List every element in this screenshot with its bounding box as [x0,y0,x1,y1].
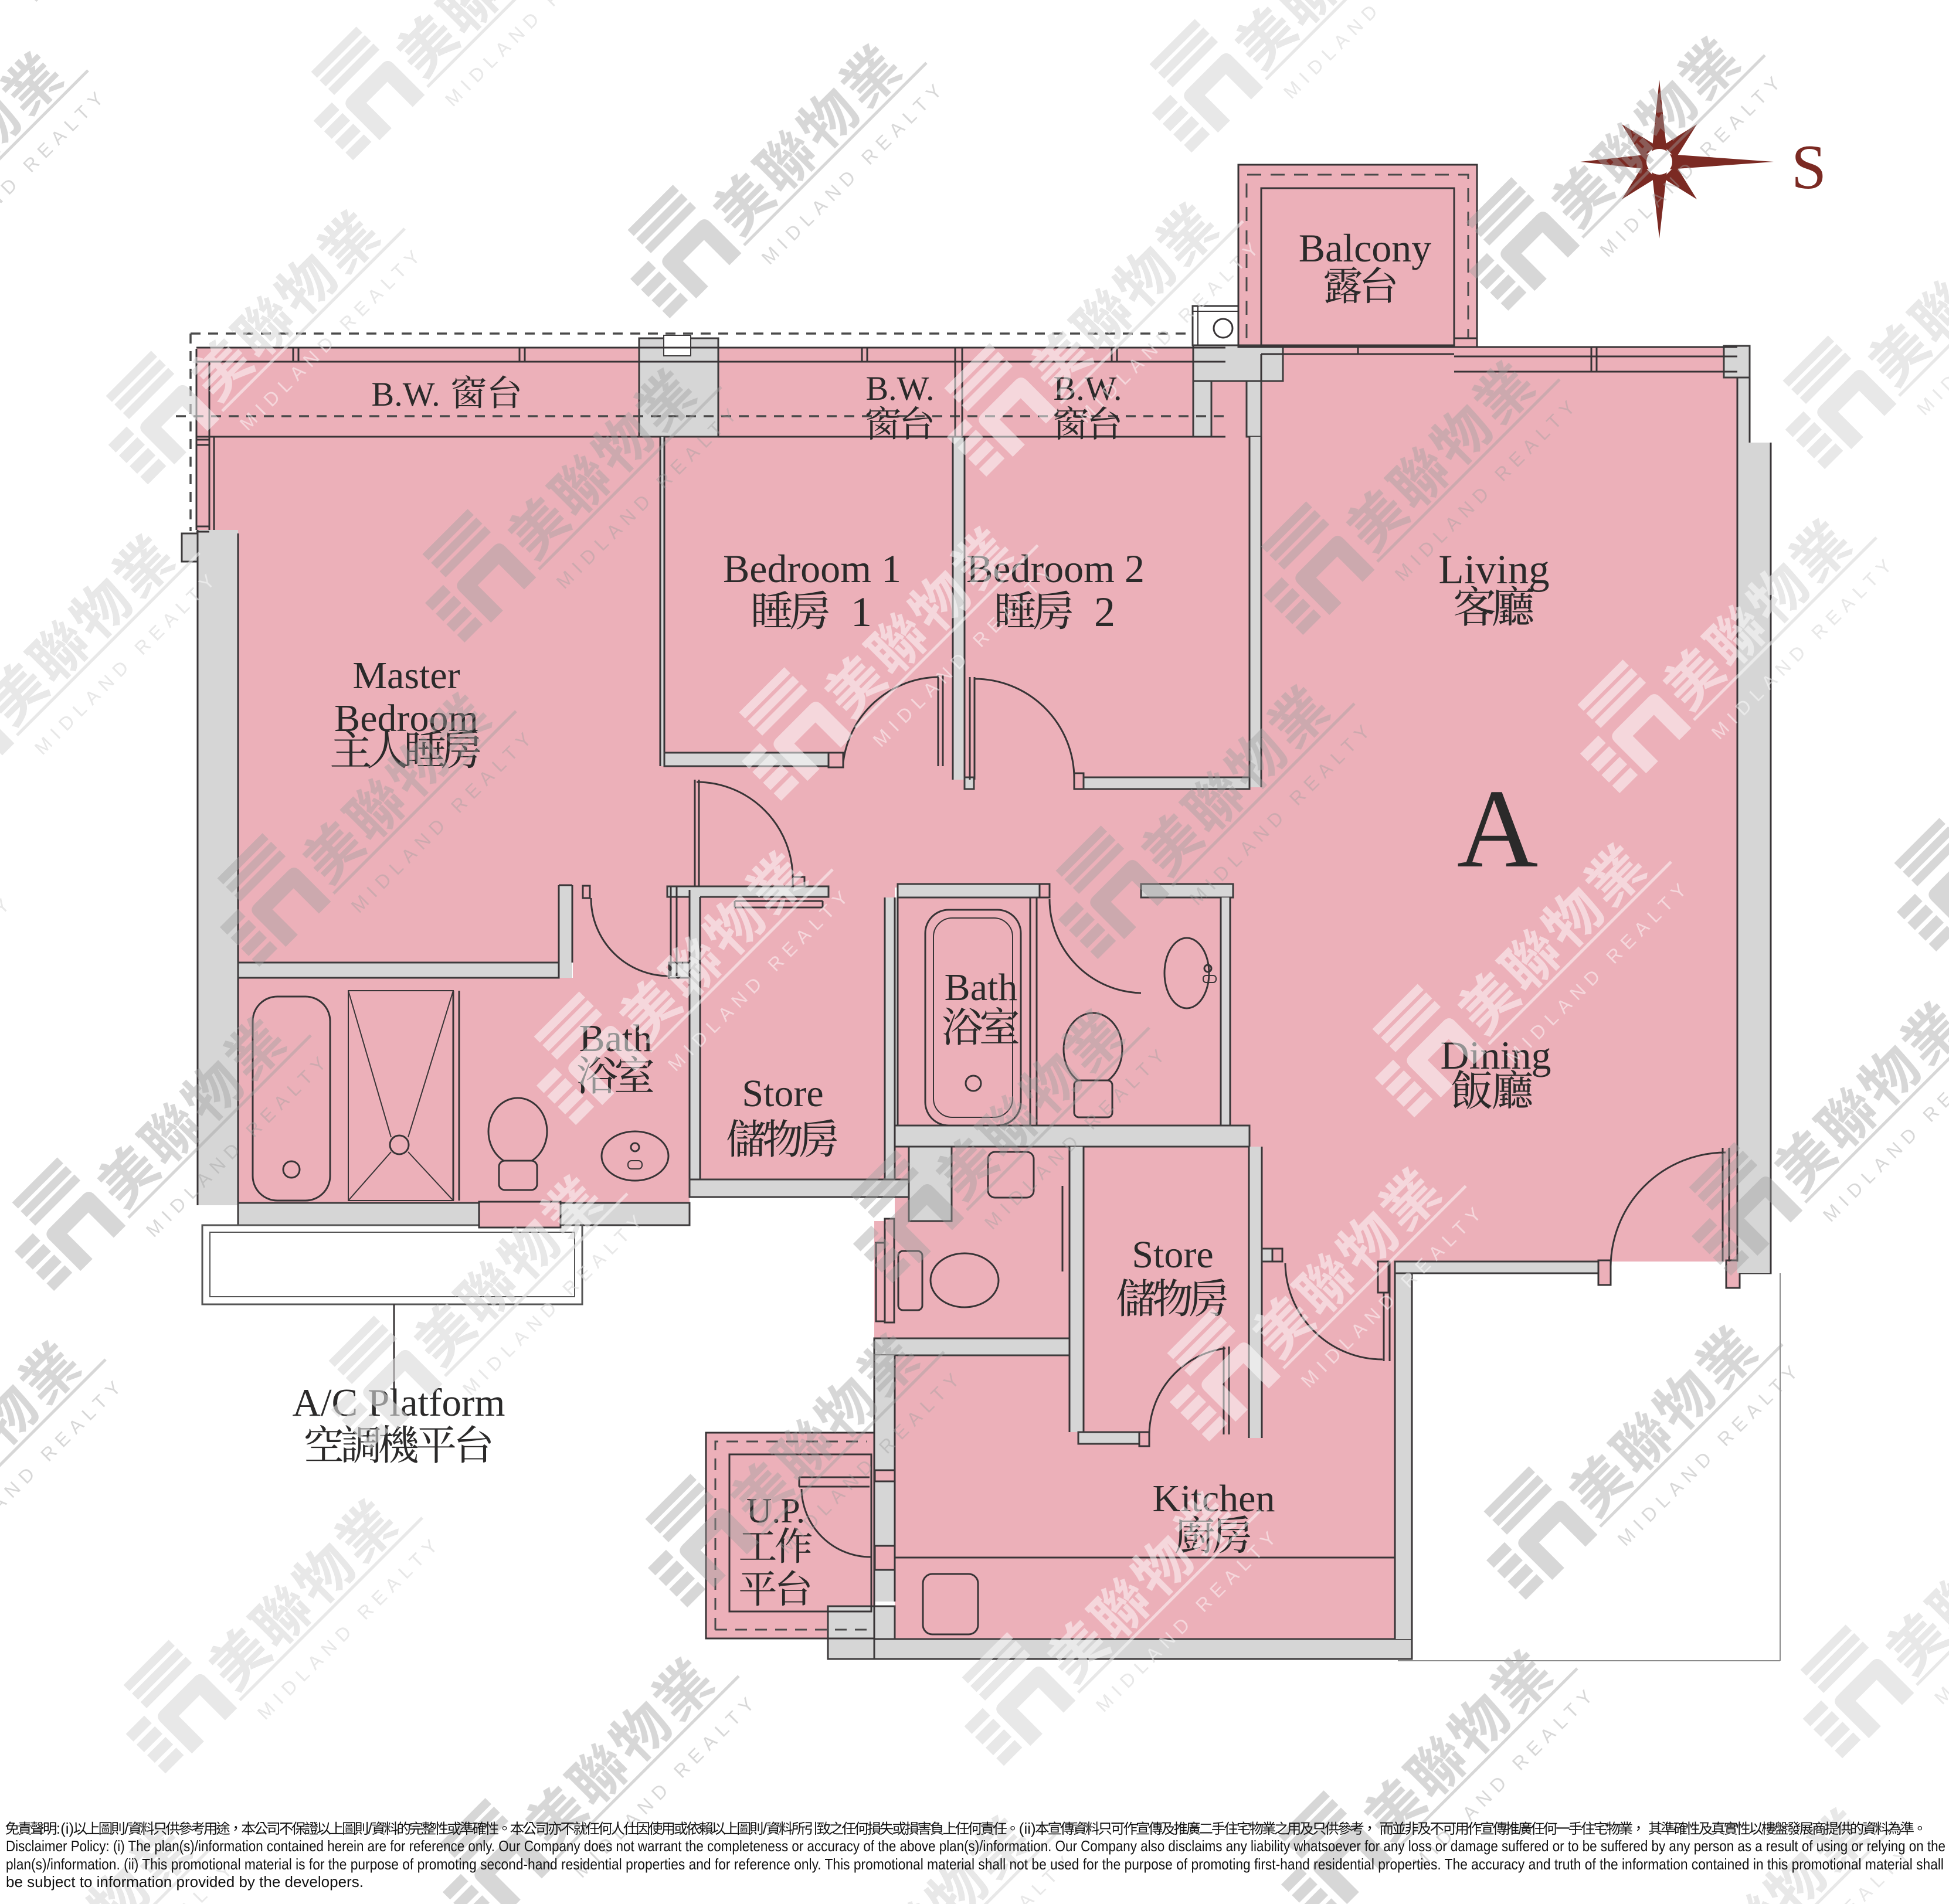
svg-text:B.W.: B.W. [372,375,440,413]
svg-text:/: / [763,1820,768,1837]
svg-text::(i): :(i) [56,1820,74,1837]
svg-text:B.W.: B.W. [865,369,934,407]
svg-text:Bath: Bath [945,966,1018,1009]
svg-text:A: A [1457,766,1539,891]
svg-text:2: 2 [1094,589,1115,635]
svg-text:Bedroom 1: Bedroom 1 [723,546,901,591]
svg-text:plan(s)/information. (ii) This: plan(s)/information. (ii) This promotion… [6,1855,1944,1873]
svg-text:Master: Master [352,654,460,697]
svg-text:S: S [1791,132,1826,202]
svg-text:Living: Living [1438,547,1549,593]
svg-text:/: / [368,1820,373,1837]
svg-text:/: / [124,1820,129,1837]
svg-text:Store: Store [1132,1233,1213,1276]
svg-text:be subject to information prov: be subject to information provided by th… [6,1873,364,1891]
svg-text:1: 1 [851,589,872,635]
svg-text:(ii): (ii) [1019,1820,1036,1837]
svg-text:Disclaimer Policy: (i) The pla: Disclaimer Policy: (i) The plan(s)/infor… [6,1837,1945,1855]
svg-text:Balcony: Balcony [1299,226,1432,270]
svg-text:Store: Store [742,1072,823,1115]
